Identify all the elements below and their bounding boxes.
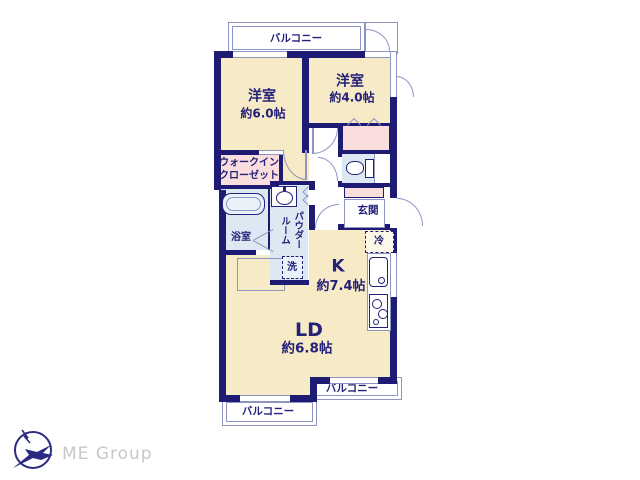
walk-in-closet-label: ウォークイン クローゼット: [219, 158, 279, 183]
bathtub-icon: [222, 193, 265, 215]
balcony-bottom-right-label: バルコニー: [326, 382, 378, 395]
closet-sliding-opening: [259, 150, 283, 155]
kitchen-sink-icon: [369, 257, 388, 287]
window: [390, 253, 397, 297]
shoe-cabinet: [344, 187, 384, 198]
wall-segment: [270, 280, 309, 285]
laundry-label: 洗: [287, 262, 297, 275]
kitchen-name-label: K: [331, 256, 344, 277]
window: [233, 51, 287, 58]
door-leaf-bedroom2: [312, 128, 314, 154]
living-dining-size-label: 約6.8帖: [282, 341, 333, 358]
refrigerator-label: 冷: [374, 236, 384, 249]
door-arc-toilet: [318, 157, 338, 181]
kitchen-faucet: [378, 277, 385, 284]
toilet-icon: [346, 161, 364, 175]
wall-segment: [310, 377, 330, 384]
door-leaf-bedroom1: [305, 150, 307, 180]
window: [330, 377, 378, 384]
burner-small: [373, 319, 379, 325]
powder-room-label: パウダー ルーム: [278, 211, 305, 249]
bedroom2-size-label: 約4.0帖: [329, 91, 374, 106]
door-arc-entrance: [397, 198, 423, 226]
bedroom2-name-label: 洋室: [336, 73, 364, 91]
brand-bird-logo-icon: [8, 422, 56, 474]
vanity-sink-icon: [271, 186, 297, 207]
floor-plan-canvas: バルコニー バルコニー バルコニー: [0, 0, 640, 480]
door-arc-bedroom2: [312, 128, 338, 154]
floor-step-outline: [237, 258, 285, 291]
wall-segment: [222, 395, 240, 402]
wall-segment: [340, 183, 390, 187]
wall-segment: [390, 97, 397, 198]
entrance-label: 玄関: [358, 204, 379, 217]
burner: [378, 309, 388, 319]
toilet-side-space: [374, 154, 391, 183]
burner: [372, 299, 382, 309]
kitchen-size-label: 約7.4帖: [316, 279, 365, 295]
bedroom2-closet: [342, 125, 390, 152]
bedroom1-name-label: 洋室: [248, 88, 276, 106]
door-arc-corner-side: [396, 76, 414, 97]
toilet-tank-icon: [365, 159, 374, 178]
living-dining-name-label: LD: [295, 319, 323, 343]
door-arc-hall-ldk: [315, 204, 339, 228]
wall-segment: [219, 190, 226, 402]
bathtub-inner: [226, 197, 261, 211]
wall-segment: [338, 181, 342, 187]
wall-segment: [390, 297, 397, 384]
sink-faucet: [283, 187, 286, 191]
wall-segment: [338, 128, 342, 157]
bathroom-label: 浴室: [231, 232, 251, 245]
wall-segment: [302, 58, 309, 153]
stove-icon: [369, 294, 388, 328]
sink-bowl: [276, 191, 293, 205]
wall-segment: [214, 150, 259, 155]
balcony-bottom-left-label: バルコニー: [242, 405, 294, 418]
wall-segment: [219, 250, 256, 255]
wall-segment: [340, 150, 390, 154]
brand-text: ME Group: [62, 444, 153, 464]
bedroom1-size-label: 約6.0帖: [240, 107, 285, 122]
balcony-top-label: バルコニー: [270, 32, 322, 45]
wall-segment: [287, 51, 365, 58]
window: [240, 395, 290, 402]
wall-segment: [268, 188, 270, 250]
